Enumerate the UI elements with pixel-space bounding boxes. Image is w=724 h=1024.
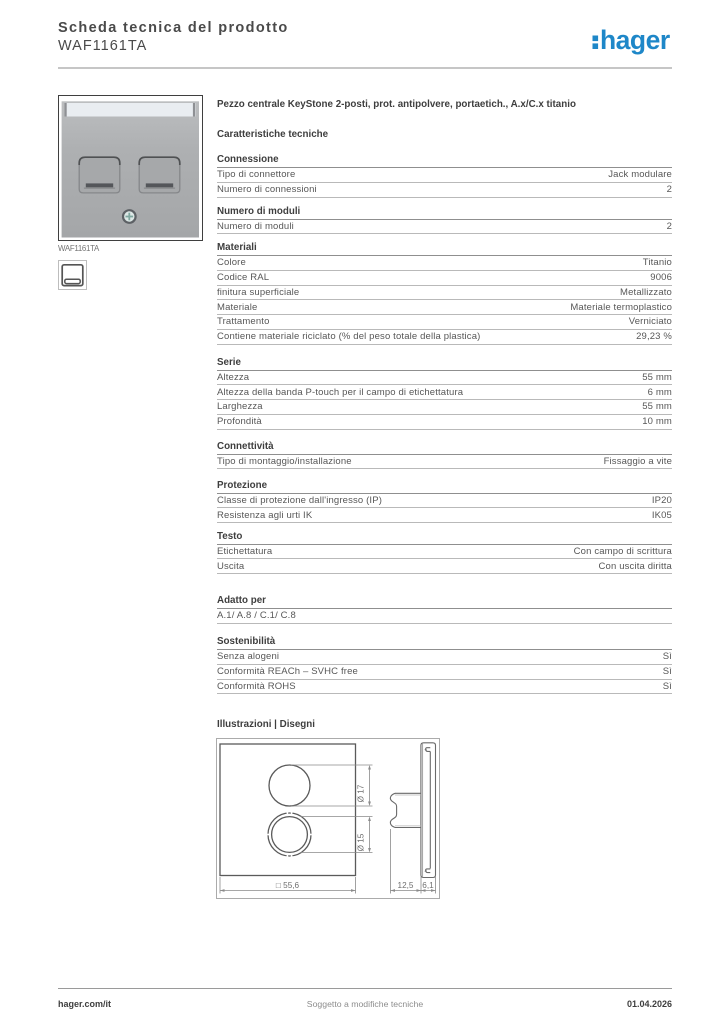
svg-text:12,5: 12,5 bbox=[398, 881, 414, 890]
svg-text:□ 55,6: □ 55,6 bbox=[276, 881, 300, 890]
svg-text:Ø 15: Ø 15 bbox=[357, 833, 366, 851]
svg-text:hager: hager bbox=[600, 25, 670, 55]
svg-text:Ø 17: Ø 17 bbox=[357, 784, 366, 802]
svg-text:6,1: 6,1 bbox=[422, 881, 434, 890]
